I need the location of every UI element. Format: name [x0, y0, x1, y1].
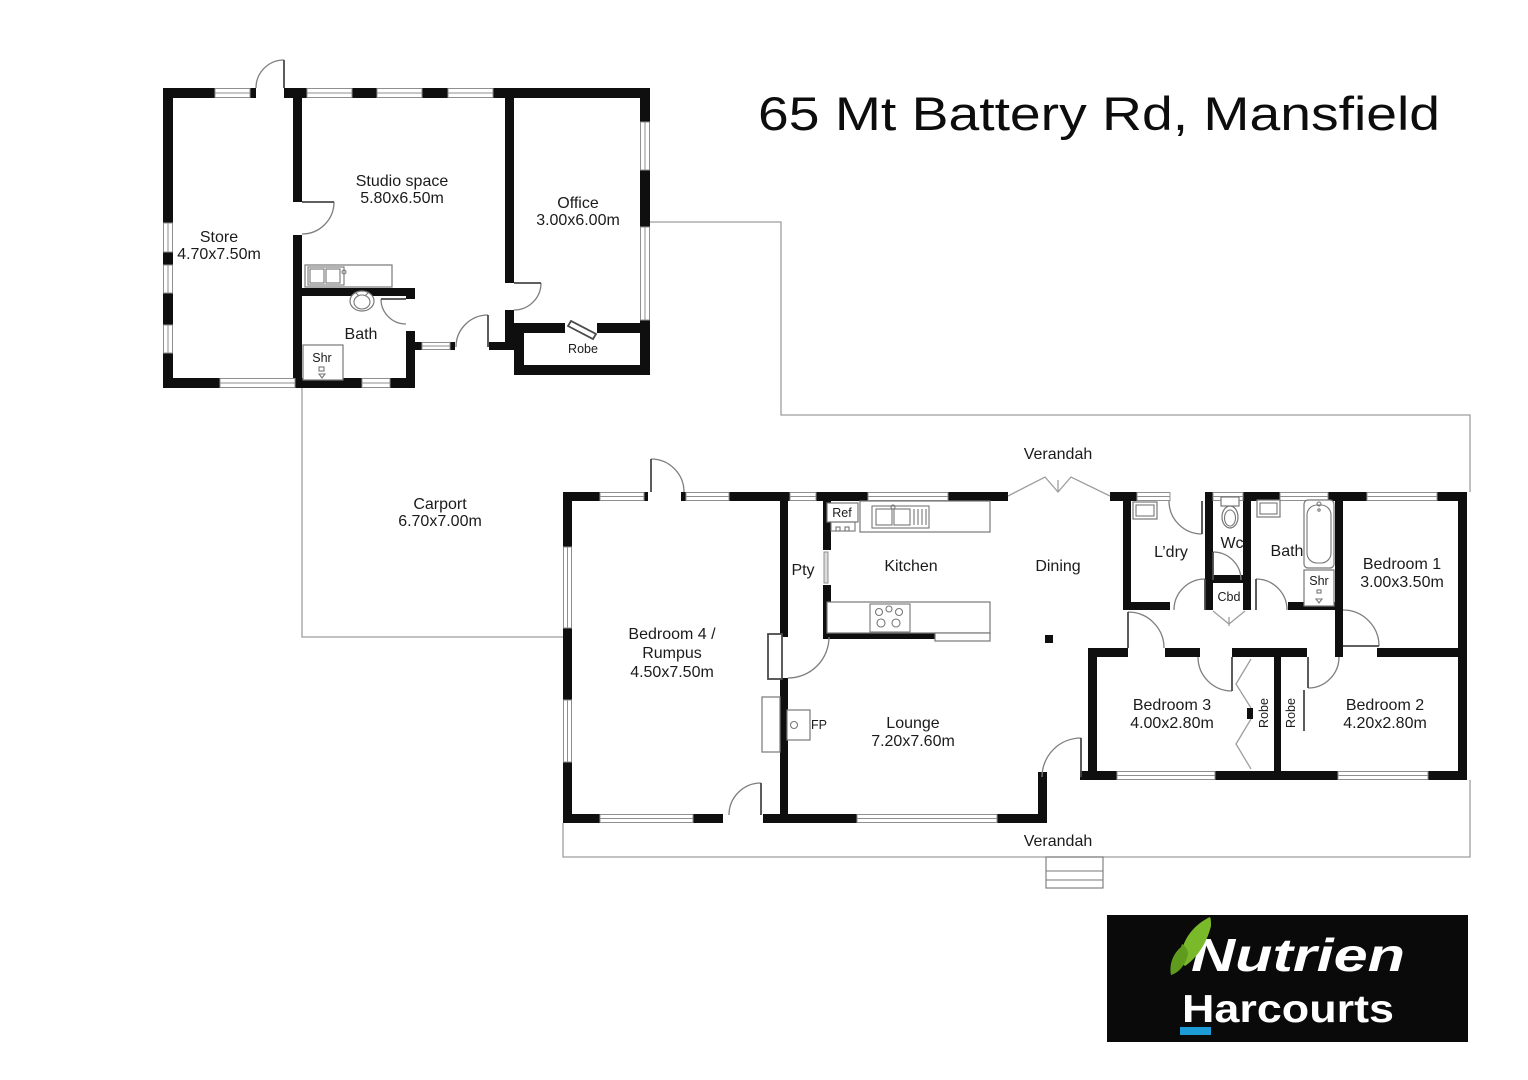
- label-bedroom4-dims: 4.50x7.50m: [630, 664, 714, 681]
- kitchen-bench-sink-icon: [860, 501, 990, 532]
- label-carport: Carport: [413, 496, 467, 513]
- robe-door-leaf: [568, 321, 596, 339]
- floorplan-canvas: 65 Mt Battery Rd, Mansfield: [0, 0, 1528, 1080]
- kitchenette-sink-icon: [305, 265, 392, 287]
- fireplace-icon: [787, 710, 810, 740]
- label-dining: Dining: [1035, 558, 1080, 575]
- label-fireplace: FP: [811, 718, 827, 732]
- label-lounge-dims: 7.20x7.60m: [871, 733, 955, 750]
- logo-brand-text: Nutrien: [1191, 929, 1405, 981]
- label-store-dims: 4.70x7.50m: [177, 246, 261, 263]
- laundry-basin-icon: [1133, 502, 1157, 519]
- page-title: 65 Mt Battery Rd, Mansfield: [758, 87, 1440, 140]
- label-wc: Wc: [1220, 535, 1243, 552]
- label-office: Office: [557, 195, 599, 212]
- label-bath-outbuilding: Bath: [345, 326, 378, 343]
- label-bedroom3: Bedroom 3: [1133, 697, 1211, 714]
- label-bedroom2: Bedroom 2: [1346, 697, 1424, 714]
- label-verandah-bottom: Verandah: [1024, 833, 1093, 850]
- steps-icon: [1046, 857, 1103, 888]
- floorplan-page: 65 Mt Battery Rd, Mansfield: [0, 0, 1528, 1080]
- label-verandah-top: Verandah: [1024, 446, 1093, 463]
- label-kitchen: Kitchen: [884, 558, 937, 575]
- label-robe-outbuilding: Robe: [568, 342, 598, 356]
- label-studio: Studio space: [356, 173, 449, 190]
- label-lounge: Lounge: [886, 715, 939, 732]
- label-bath: Bath: [1271, 543, 1304, 560]
- label-shower: Shr: [1309, 574, 1328, 588]
- bathtub-icon: [1304, 500, 1334, 568]
- toilet-icon: [1221, 497, 1239, 528]
- label-laundry: L’dry: [1154, 544, 1188, 561]
- cupboard-door-chevron: [1213, 611, 1245, 626]
- label-carport-dims: 6.70x7.00m: [398, 513, 482, 530]
- logo-subbrand-text: Harcourts: [1182, 988, 1394, 1031]
- label-bedroom3-dims: 4.00x2.80m: [1130, 715, 1214, 732]
- pantry-slider-door: [824, 552, 828, 583]
- label-bedroom1-dims: 3.00x3.50m: [1360, 574, 1444, 591]
- bedroom4-cabinet: [762, 697, 780, 752]
- agency-logo: Nutrien Harcourts: [1107, 915, 1468, 1042]
- label-fridge: Ref: [832, 506, 852, 520]
- dining-post: [1045, 635, 1053, 643]
- label-bedroom4-line2: Rumpus: [642, 645, 702, 662]
- verandah-door-chevron: [1008, 477, 1110, 496]
- label-office-dims: 3.00x6.00m: [536, 212, 620, 229]
- label-shower-outbuilding: Shr: [312, 351, 331, 365]
- label-robe-right: Robe: [1284, 698, 1298, 728]
- label-studio-dims: 5.80x6.50m: [360, 190, 444, 207]
- label-pantry: Pty: [791, 562, 814, 579]
- label-bedroom1: Bedroom 1: [1363, 556, 1441, 573]
- label-bedroom2-dims: 4.20x2.80m: [1343, 715, 1427, 732]
- logo-blue-underline: [1180, 1027, 1211, 1035]
- label-cupboard: Cbd: [1218, 590, 1241, 604]
- label-bedroom4-line1: Bedroom 4 /: [628, 626, 716, 643]
- bath-basin-icon-house: [1257, 500, 1280, 517]
- label-robe-left: Robe: [1257, 698, 1271, 728]
- verandah-bottom-outline: [563, 780, 1470, 888]
- label-store: Store: [200, 229, 238, 246]
- bath-basin-icon: [350, 291, 374, 311]
